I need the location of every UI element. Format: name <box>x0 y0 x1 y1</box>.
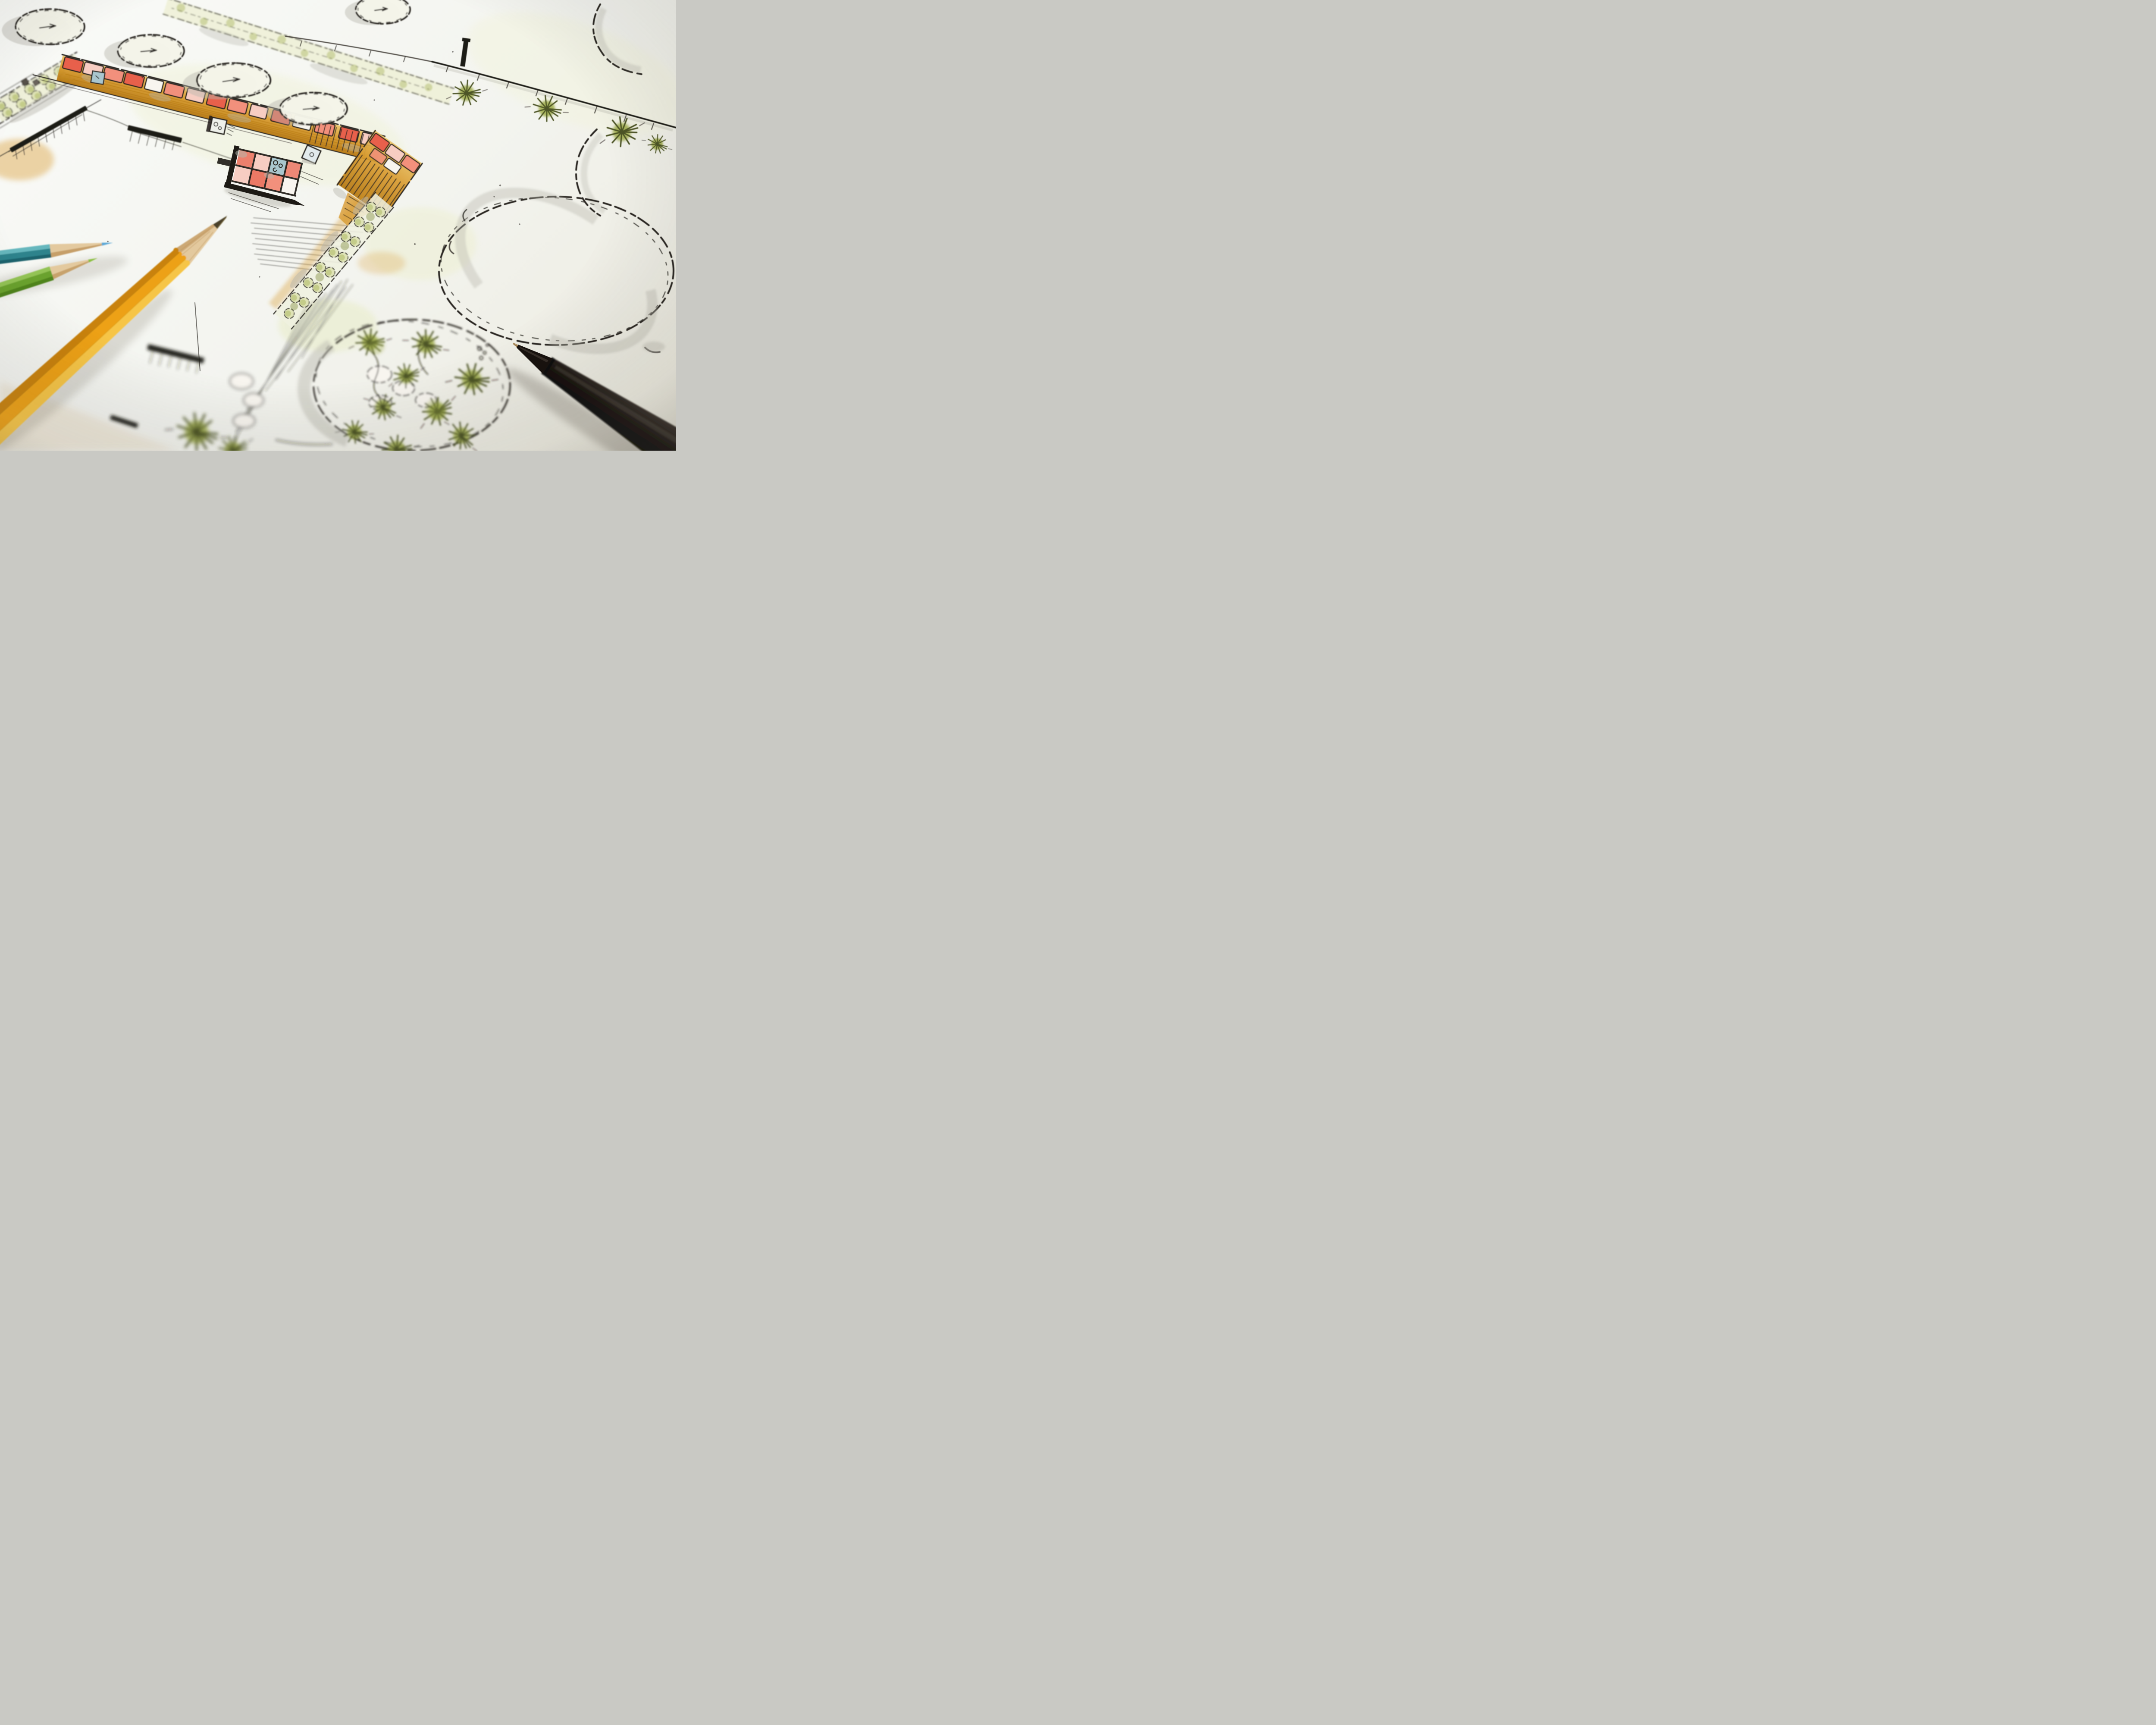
tree-canopy <box>2 4 94 50</box>
photo-garden-plan-sketch <box>0 0 676 451</box>
sketch-scene <box>0 0 676 451</box>
pencils-group <box>0 204 238 451</box>
canopy-right-edge <box>576 129 605 216</box>
canopy-large-right <box>432 160 676 381</box>
tree-canopy <box>345 0 418 28</box>
pen-tip <box>508 336 552 373</box>
blue-stepping-square <box>91 71 105 84</box>
